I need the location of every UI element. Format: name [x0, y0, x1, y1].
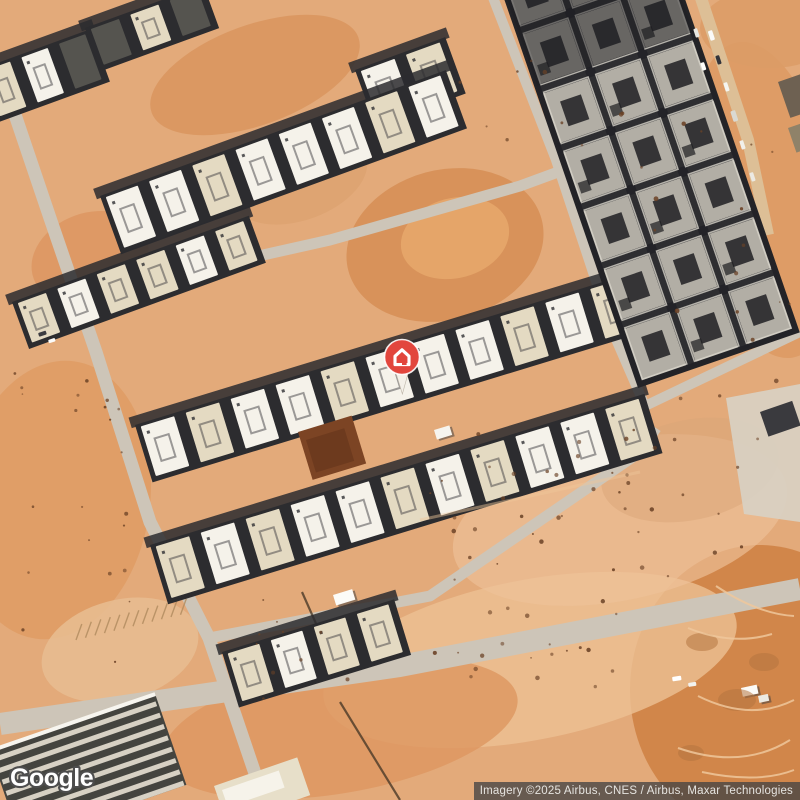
- map-viewport: Google Imagery ©2025 Airbus, CNES / Airb…: [0, 0, 800, 800]
- attribution-bar: Imagery ©2025 Airbus, CNES / Airbus, Max…: [474, 782, 800, 800]
- google-logo-text: Google: [10, 764, 94, 792]
- google-logo[interactable]: Google: [6, 761, 126, 795]
- property-marker[interactable]: [380, 336, 424, 398]
- marker-circle: [385, 340, 420, 375]
- satellite-map-canvas[interactable]: [0, 0, 800, 800]
